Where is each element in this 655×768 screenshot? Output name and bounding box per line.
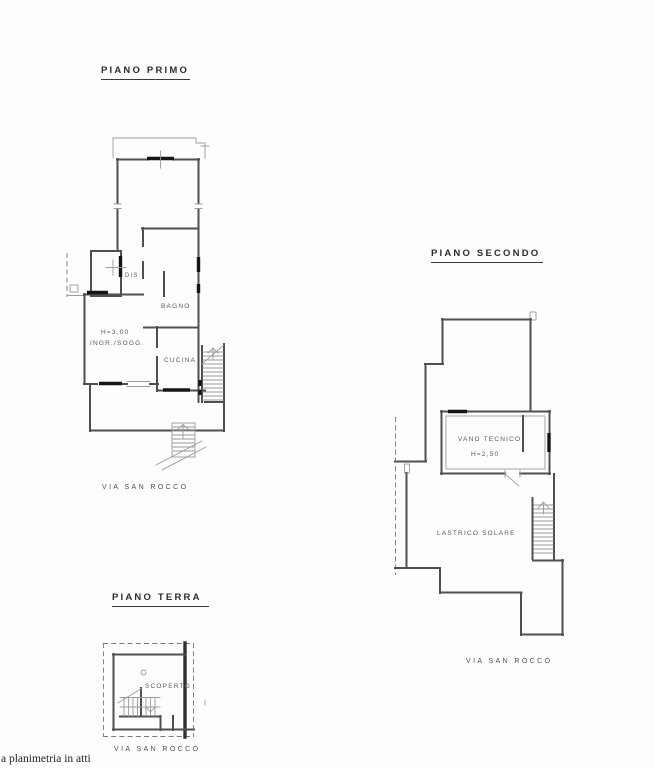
room-label-ingresso-soggiorno: INGR./SOGG. (90, 340, 144, 347)
dis-closet (91, 251, 126, 296)
lastrico-outline (395, 560, 563, 635)
street-label-piano-secondo: VIA SAN ROCCO (466, 658, 552, 665)
room-label-cucina: CUCINA (164, 357, 196, 364)
room-label-scoperto: SCOPERTO (145, 683, 191, 690)
ground-walls (113, 643, 194, 737)
floor-title-piano-primo: PIANO PRIMO (101, 65, 190, 80)
stair-second-floor-icon (533, 474, 555, 559)
terrace-walls (90, 386, 224, 431)
room-label-vano-tecnico: VANO TECNICO (458, 436, 521, 443)
stair-ground-floor-icon (118, 688, 160, 716)
internal-stair-icon (200, 344, 224, 431)
room-label-height-secondo: H=2,50 (471, 451, 499, 458)
room-label-bagno: BAGNO (161, 303, 190, 310)
floor-title-piano-secondo: PIANO SECONDO (431, 248, 543, 263)
street-label-piano-terra: VIA SAN ROCCO (114, 746, 200, 753)
plan-drawing-piano-primo (55, 125, 240, 475)
street-label-piano-primo: VIA SAN ROCCO (102, 484, 188, 491)
bottom-walls (84, 382, 205, 391)
room-label-height-primo: H=3,00 (101, 329, 129, 336)
vano-tecnico-room (441, 411, 550, 486)
floor-title-piano-terra: PIANO TERRA (112, 592, 209, 607)
balcony-top (113, 138, 209, 158)
plan-drawing-piano-secondo (390, 305, 570, 650)
floorplan-document: PIANO PRIMO (0, 0, 655, 768)
plan-drawing-piano-terra (95, 638, 210, 746)
room-label-dis: DIS (125, 273, 139, 279)
boundary-dashed (103, 643, 194, 737)
left-balcony (67, 253, 84, 297)
document-note: a planimetria in atti (1, 753, 91, 765)
room-label-lastrico-solare: LASTRICO SOLARE (437, 530, 516, 537)
